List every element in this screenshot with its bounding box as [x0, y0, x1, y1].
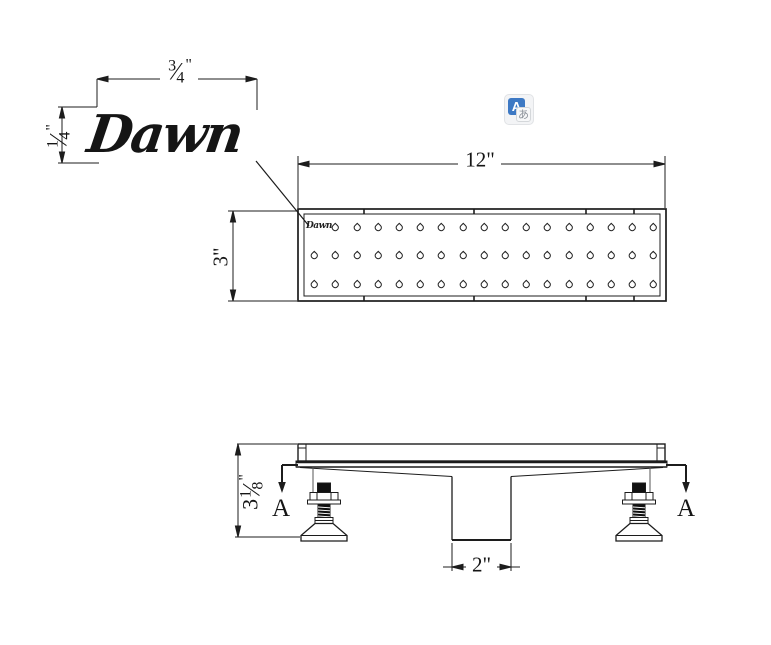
drain-hole	[564, 251, 573, 260]
drain-hole	[585, 279, 594, 288]
drain-hole	[501, 222, 510, 231]
foot-brackets	[313, 467, 650, 500]
dim-label-drain-length: 12"	[465, 148, 495, 173]
drain-hole	[352, 279, 361, 288]
drain-hole	[649, 222, 658, 231]
drain-hole	[543, 251, 552, 260]
top-view-width-dimension	[228, 211, 297, 301]
drain-hole	[416, 251, 425, 260]
drain-hole	[628, 251, 637, 260]
dim-label-three-quarter: 3⁄4"	[168, 57, 192, 88]
brand-logo: Dawn	[84, 104, 246, 165]
drain-hole	[458, 279, 467, 288]
outlet-pipe	[452, 477, 511, 541]
drain-hole	[331, 222, 340, 231]
drain-hole	[416, 279, 425, 288]
drain-hole	[501, 279, 510, 288]
drain-hole	[395, 222, 404, 231]
drain-hole	[373, 251, 382, 260]
logo-leader-line	[256, 161, 309, 226]
drain-hole	[564, 222, 573, 231]
dim-label-one-quarter: 1⁄4"	[44, 124, 75, 148]
drain-hole	[395, 279, 404, 288]
drain-hole	[395, 251, 404, 260]
drain-hole	[585, 222, 594, 231]
section-label-right: A	[677, 495, 695, 523]
drain-hole	[310, 251, 319, 260]
drain-hole	[437, 251, 446, 260]
drain-hole	[373, 222, 382, 231]
drain-hole	[331, 279, 340, 288]
drain-hole	[564, 279, 573, 288]
section-cut-right	[666, 465, 690, 493]
drain-hole	[501, 251, 510, 260]
translate-icon-hiragana: あ	[516, 107, 531, 122]
side-view-channel	[296, 444, 667, 477]
drain-hole	[352, 251, 361, 260]
drain-hole	[522, 222, 531, 231]
drain-hole	[373, 279, 382, 288]
drawing-canvas: Dawn 3⁄4" 1⁄4" 12" 3" Dawn A あ A A 2" 31…	[0, 0, 771, 645]
drain-hole	[479, 222, 488, 231]
plate-brand-mark: Dawn	[306, 221, 332, 231]
translate-icon[interactable]: A あ	[504, 94, 534, 125]
drain-hole	[331, 251, 340, 260]
drain-hole	[522, 251, 531, 260]
leveling-foot-right	[616, 483, 662, 541]
dim-label-side-height: 31⁄8"	[237, 474, 268, 510]
drain-hole	[310, 279, 319, 288]
drain-hole	[437, 279, 446, 288]
grate-holes: Dawn	[304, 214, 660, 296]
drain-hole	[458, 222, 467, 231]
drain-hole	[585, 251, 594, 260]
drain-hole	[628, 222, 637, 231]
dim-label-outlet: 2"	[472, 553, 491, 578]
drain-hole	[416, 222, 425, 231]
drain-hole	[607, 251, 616, 260]
drain-hole	[607, 279, 616, 288]
drain-hole	[479, 251, 488, 260]
section-label-left: A	[272, 495, 290, 523]
drain-hole	[437, 222, 446, 231]
drain-hole	[628, 279, 637, 288]
drain-hole	[649, 251, 658, 260]
drain-hole	[607, 222, 616, 231]
drain-hole	[649, 279, 658, 288]
drain-hole	[458, 251, 467, 260]
drain-hole	[543, 222, 552, 231]
drain-hole	[543, 279, 552, 288]
dim-label-drain-width: 3"	[209, 247, 234, 266]
drawing-strokes	[0, 0, 771, 645]
section-cut-left	[278, 465, 298, 493]
leveling-foot-left	[301, 483, 347, 541]
drain-hole	[352, 222, 361, 231]
drain-hole	[522, 279, 531, 288]
drain-hole	[479, 279, 488, 288]
